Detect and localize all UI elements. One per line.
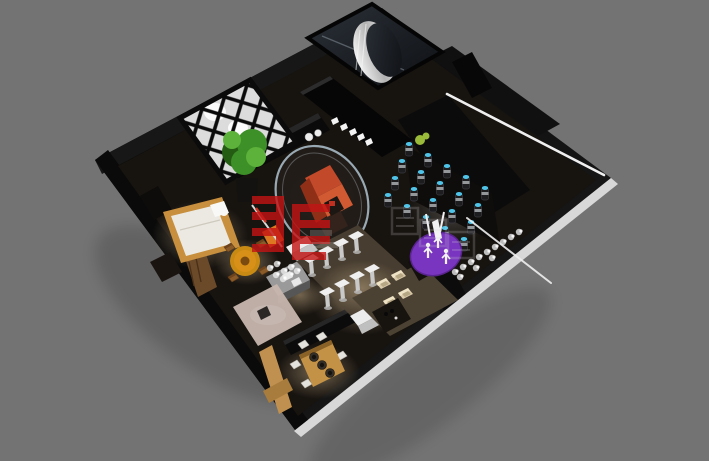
display-bottle	[444, 164, 451, 178]
display-bottle	[411, 187, 418, 201]
display-bottle	[449, 209, 456, 223]
white-vase	[315, 130, 322, 137]
display-bottle	[385, 193, 392, 207]
display-bottle	[392, 176, 399, 190]
display-bottle	[418, 170, 425, 184]
display-bottle	[482, 186, 489, 200]
display-bottle	[456, 192, 463, 206]
display-bottle	[430, 198, 437, 212]
display-bottle	[406, 142, 413, 156]
dinner-plate	[310, 353, 319, 362]
dinner-plate	[326, 369, 335, 378]
floorplan-svg	[0, 0, 709, 461]
render-viewport	[0, 0, 709, 461]
display-bottle	[437, 181, 444, 195]
display-bottle	[399, 159, 406, 173]
display-bottle	[475, 203, 482, 217]
display-bottle	[463, 175, 470, 189]
display-bottle	[404, 204, 411, 218]
display-bottle	[425, 153, 432, 167]
white-vase	[305, 133, 313, 141]
dinner-plate	[318, 361, 327, 370]
